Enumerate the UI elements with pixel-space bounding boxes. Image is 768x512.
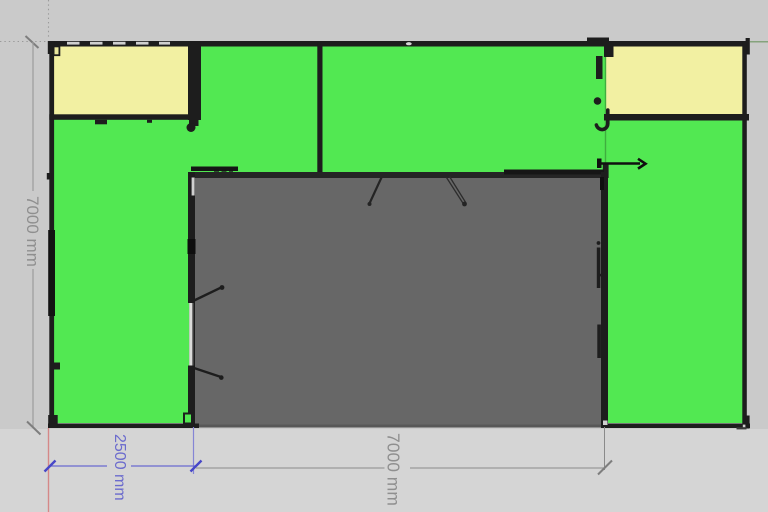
svg-text:7000 mm: 7000 mm bbox=[23, 196, 42, 267]
svg-text:7000 mm: 7000 mm bbox=[384, 433, 404, 506]
svg-text:2500 mm: 2500 mm bbox=[111, 434, 128, 501]
